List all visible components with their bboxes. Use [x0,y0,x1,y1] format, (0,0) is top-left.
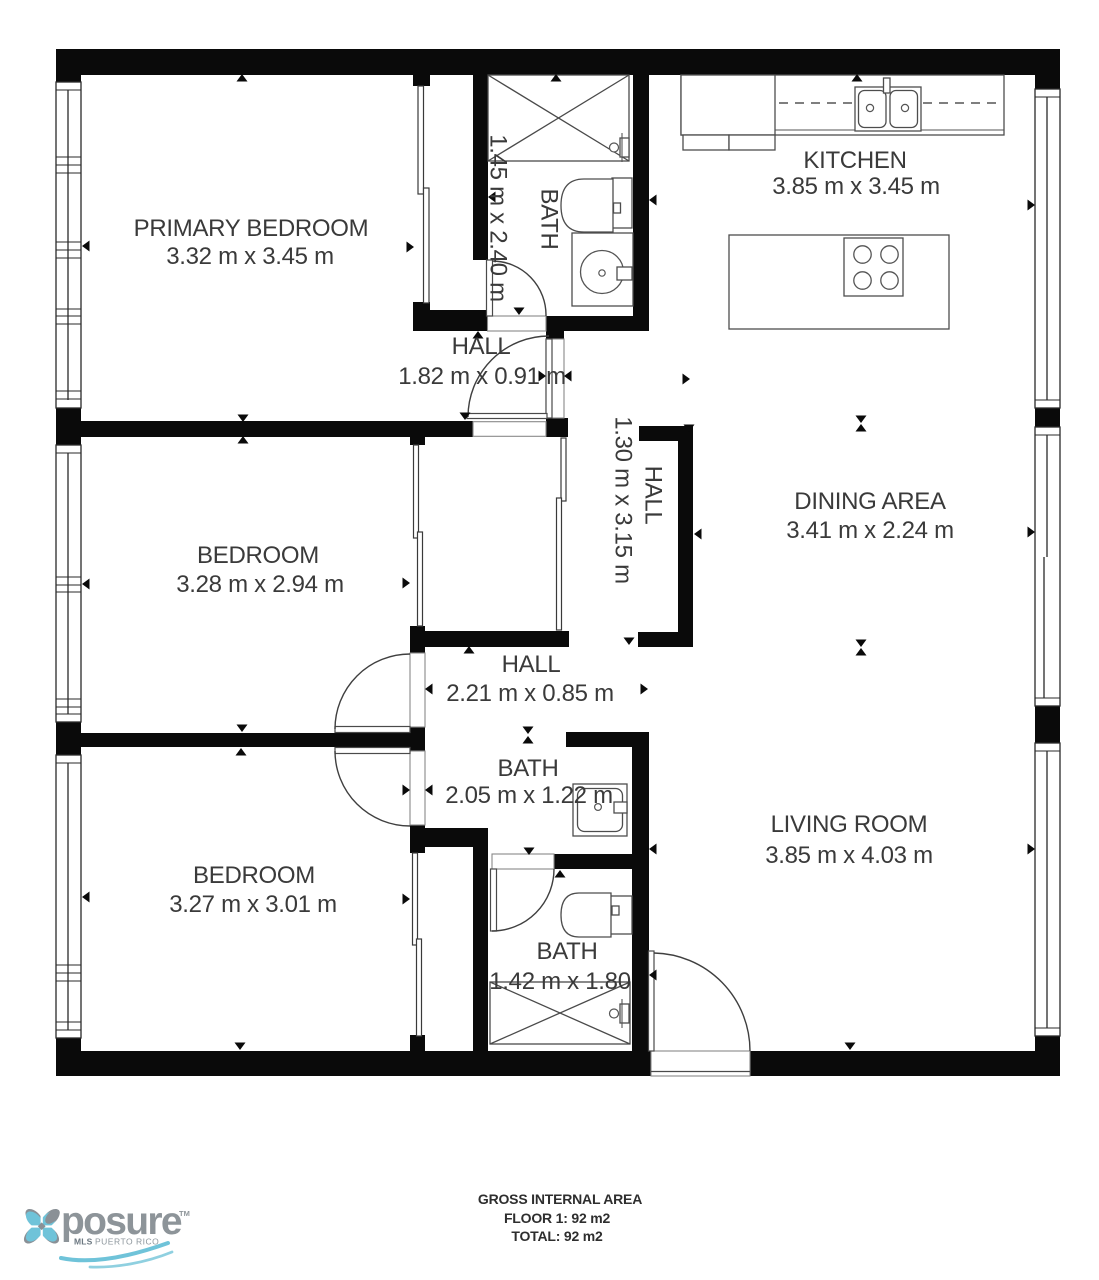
svg-text:BATH: BATH [536,938,597,965]
svg-text:LIVING ROOM: LIVING ROOM [771,811,928,838]
svg-text:3.32 m x 3.45 m: 3.32 m x 3.45 m [166,243,334,270]
svg-text:HALL: HALL [502,651,561,678]
svg-text:KITCHEN: KITCHEN [803,147,906,174]
svg-text:MLS: MLS [74,1237,93,1247]
svg-text:TOTAL: 92 m2: TOTAL: 92 m2 [511,1228,603,1244]
svg-text:3.85 m x 3.45 m: 3.85 m x 3.45 m [772,173,940,200]
svg-text:BATH: BATH [536,188,563,249]
svg-text:3.85 m x 4.03 m: 3.85 m x 4.03 m [765,842,933,869]
svg-text:1.45 m x 2.40 m: 1.45 m x 2.40 m [485,134,512,302]
svg-text:2.21 m x 0.85 m: 2.21 m x 0.85 m [446,680,614,707]
svg-text:DINING AREA: DINING AREA [794,488,946,515]
svg-text:1.30 m x 3.15 m: 1.30 m x 3.15 m [610,416,637,584]
svg-text:1.82 m x 0.91 m: 1.82 m x 0.91 m [398,363,566,390]
svg-text:PUERTO RICO: PUERTO RICO [95,1237,159,1247]
svg-text:BEDROOM: BEDROOM [193,862,315,889]
svg-text:PRIMARY BEDROOM: PRIMARY BEDROOM [134,215,369,242]
svg-text:3.41 m x 2.24 m: 3.41 m x 2.24 m [786,517,954,544]
svg-text:FLOOR 1: 92 m2: FLOOR 1: 92 m2 [504,1210,611,1226]
svg-text:3.27 m x 3.01 m: 3.27 m x 3.01 m [169,891,337,918]
svg-text:BEDROOM: BEDROOM [197,542,319,569]
svg-text:2.05 m x 1.22 m: 2.05 m x 1.22 m [445,782,613,809]
svg-text:GROSS INTERNAL AREA: GROSS INTERNAL AREA [478,1191,642,1207]
svg-text:BATH: BATH [497,755,558,782]
svg-text:1.42 m x 1.80: 1.42 m x 1.80 [489,968,631,995]
svg-text:HALL: HALL [452,333,511,360]
svg-text:3.28 m x 2.94 m: 3.28 m x 2.94 m [176,571,344,598]
svg-text:TM: TM [179,1209,190,1218]
svg-text:HALL: HALL [640,466,667,525]
